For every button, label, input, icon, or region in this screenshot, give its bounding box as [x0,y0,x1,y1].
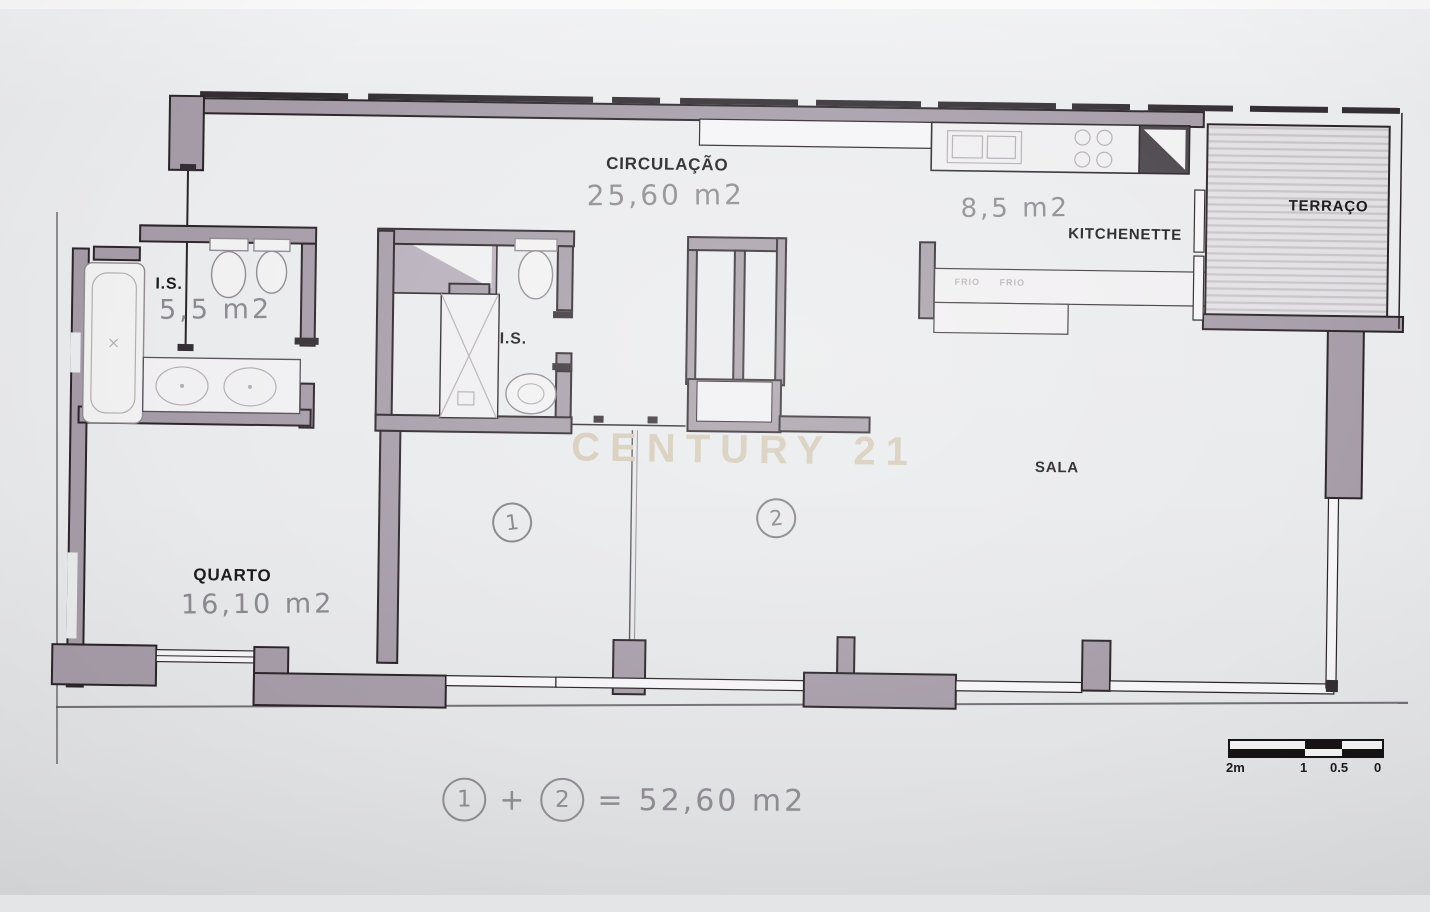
scale-bar-graphic [1228,739,1384,758]
quarto-walls [52,426,560,709]
room-label-quarto: QUARTO [193,565,271,586]
sala-window-band [556,295,1365,714]
counter-label-frio-right: FRIO [999,277,1025,287]
corner-cabinet-icon [1139,125,1190,174]
area-note-kitchenette: 8,5 m2 [960,193,1070,224]
scale-tick-05: 0.5 [1330,760,1348,775]
kitchen-lower-counter [919,242,1213,336]
bidet-icon [253,239,290,293]
area-note-circulacao: 25,60 m2 [587,178,745,212]
room-label-terraco: TERRAÇO [1289,197,1369,215]
washbasin-icon [506,373,557,414]
area-formula: 1 + 2 = 52,60 m2 [442,777,806,822]
century21-watermark: CENTURY 21 [571,425,918,475]
area-note-quarto: 16,10 m2 [181,588,335,620]
scale-bar: 2m 1 0.5 0 [1228,739,1384,776]
formula-zone2: 2 [540,778,584,822]
scale-tick-1: 1 [1300,760,1307,775]
wardrobe-block [571,235,872,433]
room-label-circulacao: CIRCULAÇÃO [606,154,729,176]
counter-label-frio-left: FRIO [954,277,980,287]
scanned-paper: .w{fill:#a59ca7;stroke:#2b2529;stroke-wi… [0,0,1430,895]
formula-zone1: 1 [442,777,486,821]
formula-equals: = [597,783,625,818]
formula-result: 52,60 m2 [638,783,806,819]
area-note-is1: 5,5 m2 [159,294,272,326]
terrace [1193,110,1406,332]
double-washbasin-icon [143,357,301,413]
shower-icon [440,294,500,419]
room-label-is2: I.S. [500,330,527,348]
terrace-decking [1205,124,1390,325]
room-label-sala: SALA [1035,459,1079,477]
scale-tick-0: 0 [1374,760,1381,775]
toilet-icon [209,238,248,298]
bathtub-icon [82,263,144,424]
room-label-kitchenette: KITCHENETTE [1068,225,1182,244]
formula-plus: + [499,782,527,817]
scale-tick-2m: 2m [1226,760,1245,775]
toilet-icon [514,239,557,300]
floor-plan: .w{fill:#a59ca7;stroke:#2b2529;stroke-wi… [0,0,1430,912]
room-label-is1: I.S. [155,276,182,294]
kitchenette-counter [699,119,1140,173]
